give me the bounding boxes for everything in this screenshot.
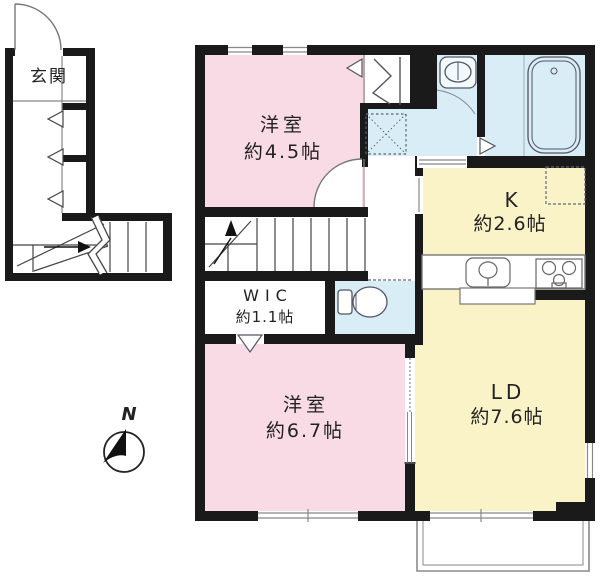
washbasin — [437, 57, 476, 114]
closet-hanger — [347, 55, 400, 105]
kitchen-size: 約2.6帖 — [473, 215, 546, 234]
washing-machine-space — [366, 114, 406, 154]
living-dining-size: 約7.6帖 — [470, 408, 543, 427]
bedroom1-size: 約4.5帖 — [244, 143, 322, 162]
entrance-door — [15, 4, 61, 50]
stair-direction-arrow-icon — [78, 241, 91, 253]
bedroom2-size: 約6.7帖 — [266, 422, 344, 441]
staircase-upper — [205, 218, 365, 271]
wic-size: 約1.1帖 — [236, 310, 295, 325]
bedroom1-label: 洋室 — [260, 116, 306, 135]
toilet — [338, 287, 387, 317]
kitchen-label: K — [504, 190, 519, 210]
bathtub — [524, 55, 580, 156]
genkan-label: 玄関 — [30, 69, 68, 86]
living-dining-label: LD — [491, 382, 526, 402]
staircase-lower — [13, 217, 146, 273]
wic-label: WIC — [243, 288, 293, 304]
closet-door-marker — [347, 59, 362, 77]
floorplan-linework — [0, 0, 600, 579]
compass-north-label: N — [121, 406, 136, 424]
compass — [103, 429, 144, 472]
refrigerator-space — [546, 167, 585, 204]
floor-plan: 玄関 洋室 約4.5帖 K 約2.6帖 WIC 約1.1帖 洋室 約6.7帖 L… — [0, 0, 600, 579]
bedroom1-door — [314, 159, 364, 207]
balcony — [417, 521, 589, 571]
bedroom2-label: 洋室 — [283, 396, 329, 415]
stair-up-arrow-icon — [225, 220, 237, 236]
bathroom-door-marker — [480, 138, 495, 154]
storage-door-markers — [48, 111, 63, 207]
